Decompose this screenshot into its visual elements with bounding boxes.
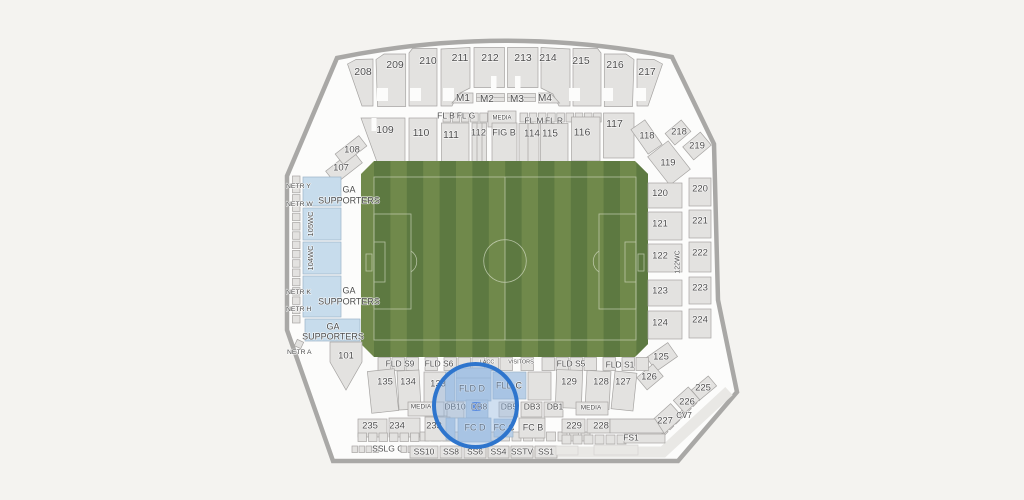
svg-text:SSLG G: SSLG G xyxy=(372,443,404,453)
svg-text:FLD S6: FLD S6 xyxy=(425,358,454,368)
svg-text:SS10: SS10 xyxy=(414,446,435,456)
svg-text:MEDIA: MEDIA xyxy=(581,405,602,412)
svg-text:208: 208 xyxy=(354,66,372,78)
svg-text:223: 223 xyxy=(692,283,708,294)
svg-text:SUPPORTERS: SUPPORTERS xyxy=(302,331,364,341)
svg-text:M4: M4 xyxy=(538,93,552,104)
svg-text:FL G: FL G xyxy=(457,110,476,120)
svg-text:CV7: CV7 xyxy=(676,411,692,420)
svg-text:FC B: FC B xyxy=(523,422,544,432)
svg-text:219: 219 xyxy=(689,141,705,152)
svg-text:105WC: 105WC xyxy=(306,211,315,237)
svg-text:M2: M2 xyxy=(480,94,494,105)
svg-text:110: 110 xyxy=(413,127,430,139)
svg-text:SSTV: SSTV xyxy=(511,446,534,456)
svg-text:SS8: SS8 xyxy=(443,446,459,456)
svg-text:226: 226 xyxy=(679,397,695,408)
svg-text:121: 121 xyxy=(652,219,668,230)
svg-text:216: 216 xyxy=(606,59,624,71)
svg-text:117: 117 xyxy=(606,118,623,130)
svg-text:M1: M1 xyxy=(456,93,470,104)
svg-text:122: 122 xyxy=(652,251,668,262)
svg-text:FLD S9: FLD S9 xyxy=(386,358,415,368)
svg-text:119: 119 xyxy=(660,158,675,169)
svg-text:FLD S5: FLD S5 xyxy=(557,358,586,368)
svg-text:123: 123 xyxy=(652,286,668,297)
svg-text:234: 234 xyxy=(389,421,405,432)
svg-text:135: 135 xyxy=(377,377,393,388)
svg-text:211: 211 xyxy=(452,52,469,64)
svg-text:229: 229 xyxy=(566,421,582,432)
svg-text:217: 217 xyxy=(638,66,656,78)
svg-text:DB3: DB3 xyxy=(524,401,541,411)
svg-text:220: 220 xyxy=(692,184,708,195)
svg-text:228: 228 xyxy=(593,421,609,432)
svg-text:MEDIA: MEDIA xyxy=(492,116,511,122)
svg-text:125: 125 xyxy=(653,352,669,363)
svg-text:124: 124 xyxy=(652,318,668,329)
svg-text:FIG B: FIG B xyxy=(492,127,516,137)
svg-text:209: 209 xyxy=(386,59,404,71)
svg-text:227: 227 xyxy=(657,416,673,427)
svg-text:114: 114 xyxy=(524,129,540,140)
svg-text:109: 109 xyxy=(376,124,394,136)
svg-text:108: 108 xyxy=(344,145,360,156)
svg-text:MEDIA: MEDIA xyxy=(411,404,432,411)
svg-text:107: 107 xyxy=(333,163,349,174)
svg-text:118: 118 xyxy=(639,131,654,142)
svg-text:215: 215 xyxy=(572,55,590,67)
svg-text:M3: M3 xyxy=(510,94,524,105)
svg-text:NETR H: NETR H xyxy=(286,306,311,313)
svg-text:210: 210 xyxy=(419,55,437,67)
svg-text:235: 235 xyxy=(362,421,378,432)
svg-text:NETR A: NETR A xyxy=(287,349,312,356)
svg-text:127: 127 xyxy=(615,377,631,388)
svg-text:SUPPORTERS: SUPPORTERS xyxy=(318,296,380,306)
svg-text:GA: GA xyxy=(342,184,355,194)
svg-text:FL B: FL B xyxy=(437,110,455,120)
svg-text:SS1: SS1 xyxy=(538,446,554,456)
svg-text:122WC: 122WC xyxy=(674,250,681,273)
svg-text:SUPPORTERS: SUPPORTERS xyxy=(318,195,380,205)
svg-text:NETR K: NETR K xyxy=(286,289,311,296)
svg-text:116: 116 xyxy=(574,126,591,138)
svg-text:134: 134 xyxy=(400,377,416,388)
svg-text:DB1: DB1 xyxy=(547,401,564,411)
svg-text:112: 112 xyxy=(471,128,486,139)
svg-text:VISITORS: VISITORS xyxy=(508,359,534,365)
svg-text:224: 224 xyxy=(692,315,708,326)
svg-text:FS1: FS1 xyxy=(623,432,639,442)
svg-text:212: 212 xyxy=(481,52,499,64)
svg-text:104WC: 104WC xyxy=(306,245,315,271)
svg-text:111: 111 xyxy=(443,129,459,141)
svg-text:214: 214 xyxy=(539,52,557,64)
svg-text:115: 115 xyxy=(542,129,558,140)
svg-text:218: 218 xyxy=(671,127,687,138)
svg-text:213: 213 xyxy=(514,52,532,64)
svg-text:NETR Y: NETR Y xyxy=(286,183,311,190)
svg-text:129: 129 xyxy=(561,377,577,388)
svg-text:NETR W: NETR W xyxy=(286,201,313,208)
svg-text:221: 221 xyxy=(692,216,708,227)
svg-text:SS4: SS4 xyxy=(490,446,506,456)
svg-text:120: 120 xyxy=(652,188,668,199)
svg-text:FLD S1: FLD S1 xyxy=(606,359,635,369)
svg-text:225: 225 xyxy=(695,383,711,394)
svg-text:222: 222 xyxy=(692,248,708,259)
svg-text:126: 126 xyxy=(641,372,657,383)
svg-text:101: 101 xyxy=(338,351,354,362)
svg-text:GA: GA xyxy=(326,321,339,331)
svg-text:GA: GA xyxy=(342,285,355,295)
svg-text:128: 128 xyxy=(593,377,609,388)
